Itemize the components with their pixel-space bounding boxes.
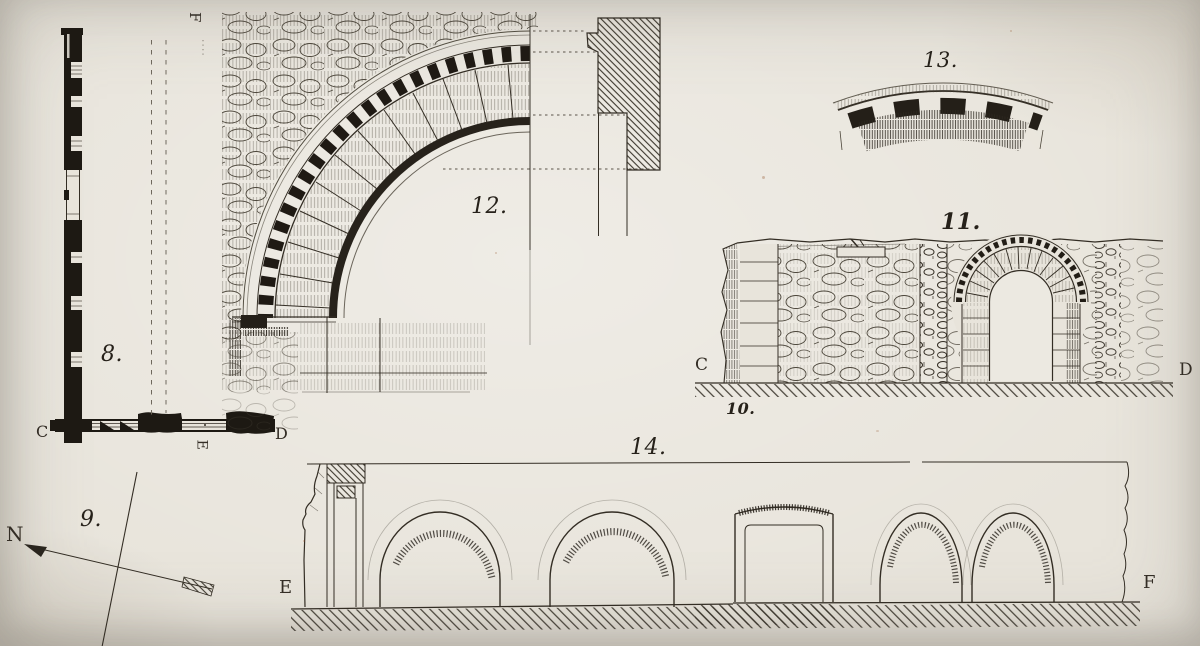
fig14-broken-edge — [1122, 462, 1129, 602]
fig14-label: 14. — [630, 437, 667, 459]
fig11-label: 11. — [941, 211, 981, 233]
fig12-label: 12. — [471, 196, 508, 218]
fig10-label: 10. — [726, 401, 755, 417]
fig11-doorway-arch — [951, 232, 1091, 383]
fig14-letter-f: F — [1143, 574, 1156, 592]
fig8-construction-dashed-lines — [152, 40, 204, 415]
fig14-letter-e: E — [279, 579, 293, 597]
doorway-opening — [990, 271, 1053, 381]
fig12-impost-block — [222, 315, 487, 432]
fig8-letter-e-bottom: E — [194, 440, 208, 451]
fig14-doorway — [735, 507, 833, 602]
fig11-pilaster-strip — [920, 244, 947, 383]
fig14-arch-4 — [963, 504, 1063, 602]
fig13-label: 13. — [923, 50, 958, 71]
fig11-ground-line — [695, 383, 1173, 397]
billet-shadow-hatch — [862, 125, 1024, 137]
fig11-wall-elevation-group — [695, 232, 1173, 397]
fig11-letter-c: C — [695, 357, 709, 374]
fig8-letter-f-top: F — [187, 12, 202, 23]
fig8-label: 8. — [101, 344, 123, 366]
survey-line — [101, 472, 137, 646]
fig11-rubble-sketchy-right — [1121, 246, 1163, 383]
north-arrow-feather — [182, 577, 214, 596]
north-arrow-head — [24, 544, 47, 557]
fig13-billet-detail-group — [833, 83, 1053, 150]
fig14-arch-3 — [871, 504, 971, 602]
fig9-letter-n: N — [6, 524, 24, 544]
engraving-plate: F 8. C D E 9. N 12. 13. 11. 10. C D 14. … — [0, 0, 1200, 646]
fig8-letter-d: D — [275, 426, 288, 442]
fig12-moulding-profile-section — [587, 18, 660, 236]
fig14-interior-elevation-group — [291, 462, 1140, 631]
fig8-vertical-wall — [61, 28, 83, 443]
fig14-pier-section — [303, 464, 365, 607]
fig9-north-arrow-group — [24, 472, 214, 646]
fig11-rubble-strip-right — [1095, 244, 1121, 383]
fig14-ground-line — [291, 602, 1140, 631]
fig9-label: 9. — [80, 509, 102, 531]
fig12-arch-group — [222, 12, 660, 432]
fig11-quoins — [721, 243, 778, 383]
fig8-letter-c: C — [36, 424, 49, 440]
fig11-letter-d: D — [1179, 362, 1193, 379]
wall-top-edge — [737, 239, 1163, 243]
fig14-arch-1 — [368, 500, 512, 607]
plate-drawing — [0, 0, 1200, 646]
fig14-arch-2 — [538, 500, 686, 607]
